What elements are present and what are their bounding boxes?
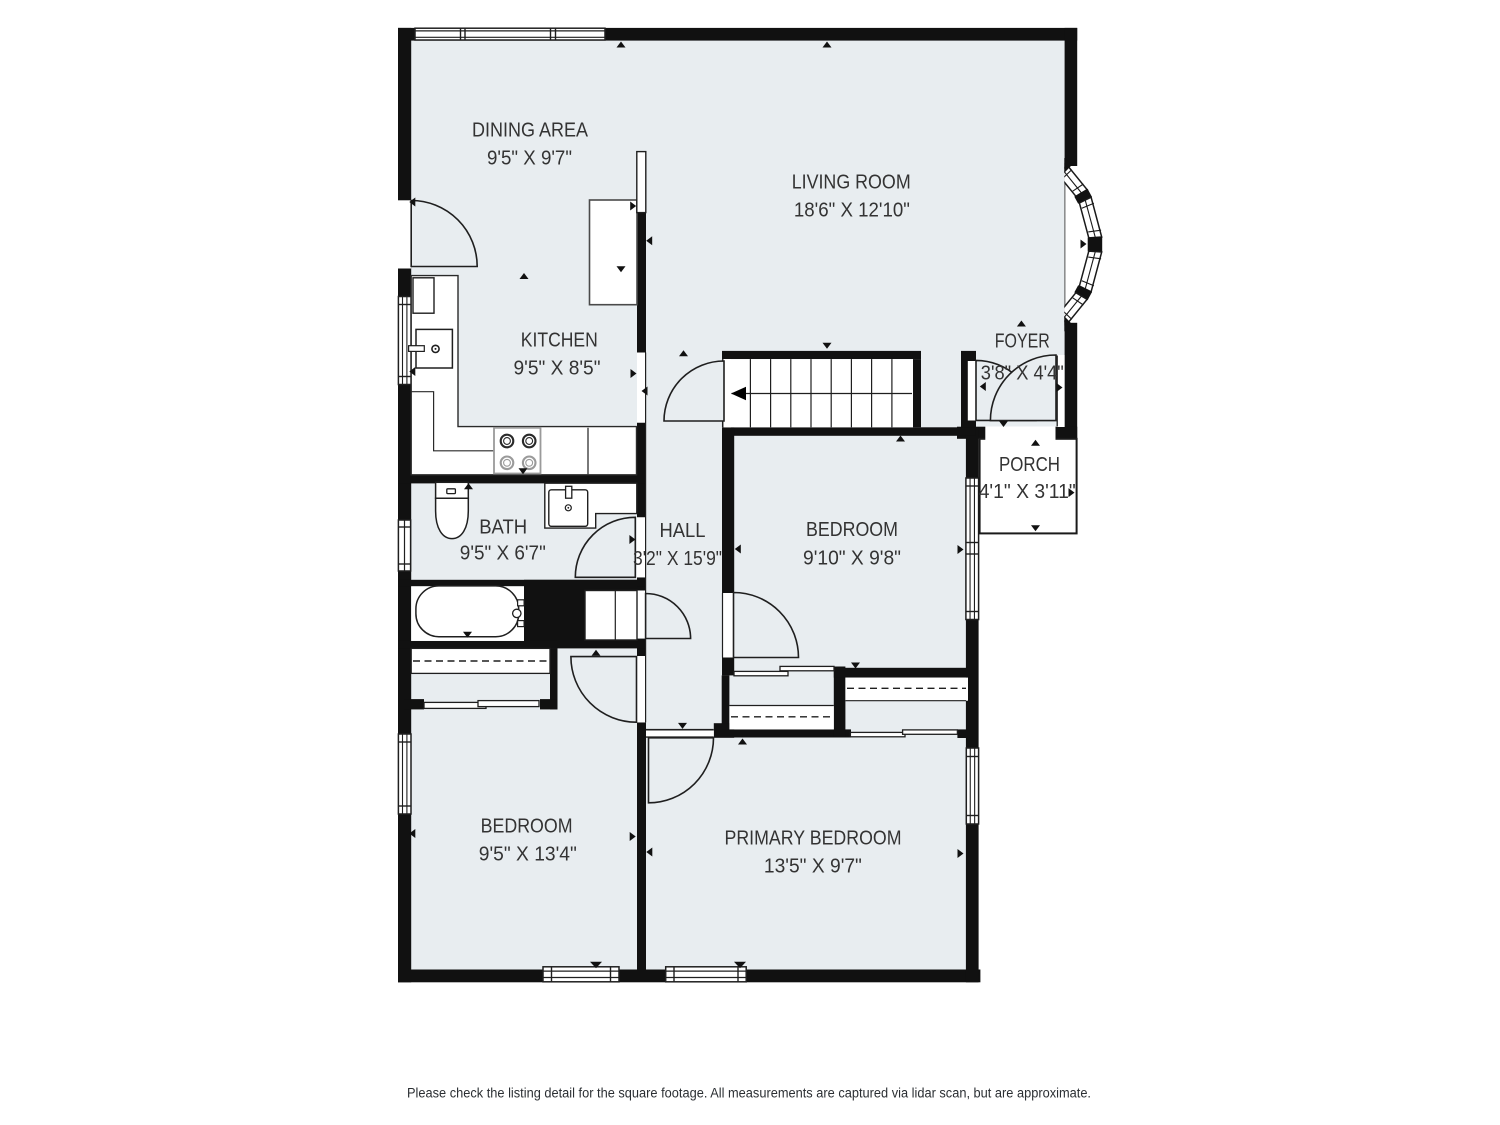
svg-text:PORCH: PORCH xyxy=(999,453,1060,476)
svg-text:9'5" X 13'4": 9'5" X 13'4" xyxy=(479,842,577,865)
svg-text:BATH: BATH xyxy=(479,515,527,538)
svg-text:LIVING ROOM: LIVING ROOM xyxy=(792,170,911,193)
svg-text:PRIMARY BEDROOM: PRIMARY BEDROOM xyxy=(725,827,902,850)
svg-text:9'5" X 9'7": 9'5" X 9'7" xyxy=(487,147,572,170)
svg-text:13'5" X 9'7": 13'5" X 9'7" xyxy=(764,855,862,878)
svg-text:9'5" X 6'7": 9'5" X 6'7" xyxy=(460,541,546,564)
svg-text:Please check the listing detai: Please check the listing detail for the … xyxy=(407,1086,1091,1101)
svg-text:9'5" X 8'5": 9'5" X 8'5" xyxy=(514,356,601,379)
svg-text:BEDROOM: BEDROOM xyxy=(806,518,898,541)
svg-text:4'1" X 3'11": 4'1" X 3'11" xyxy=(979,480,1076,503)
svg-text:KITCHEN: KITCHEN xyxy=(521,329,598,352)
svg-text:18'6" X 12'10": 18'6" X 12'10" xyxy=(794,198,910,221)
svg-text:FOYER: FOYER xyxy=(995,330,1050,353)
svg-text:BEDROOM: BEDROOM xyxy=(481,814,573,837)
svg-text:HALL: HALL xyxy=(660,519,706,542)
svg-text:3'8" X 4'4": 3'8" X 4'4" xyxy=(981,362,1064,385)
svg-text:9'10" X 9'8": 9'10" X 9'8" xyxy=(803,546,901,569)
svg-text:DINING AREA: DINING AREA xyxy=(472,119,588,142)
svg-text:3'2" X 15'9": 3'2" X 15'9" xyxy=(633,547,722,570)
